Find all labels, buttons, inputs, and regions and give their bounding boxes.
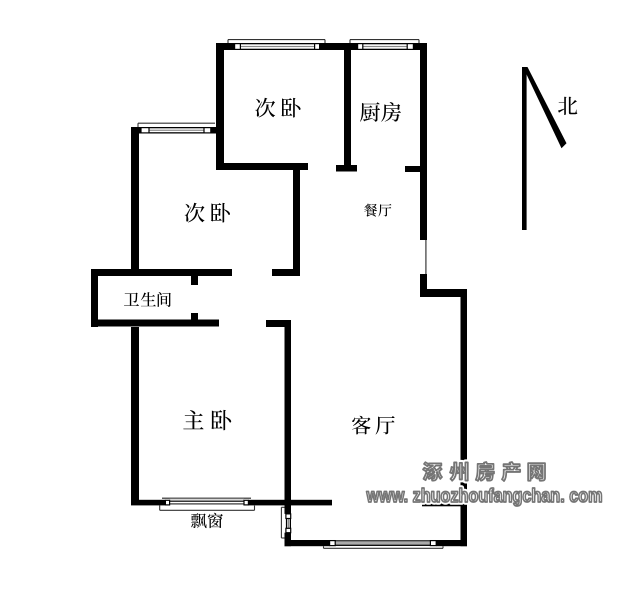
svg-text:www. zhuozhoufangchan. com: www. zhuozhoufangchan. com bbox=[366, 485, 603, 507]
